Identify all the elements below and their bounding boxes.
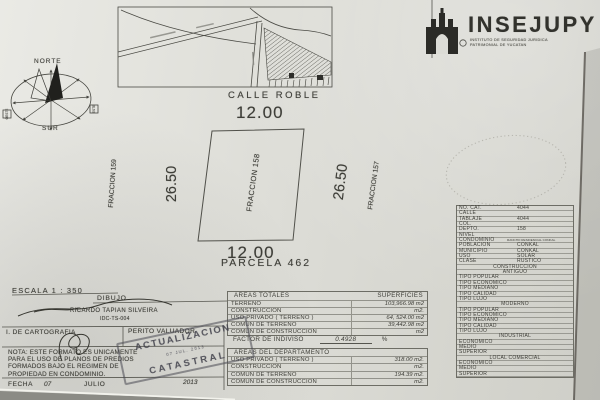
cadastral-row-label: INDUSTRIAL — [499, 333, 531, 339]
logo-wordmark: INSEJUPY — [468, 12, 597, 38]
compass-west-label: OESTE — [5, 104, 9, 124]
row-value: 64, 524.00 m2 — [351, 315, 427, 321]
cadastral-data-table: NO. CAT. 4044 CALLE TABLAJE 4044 COL. DE… — [456, 205, 574, 378]
parcel-label: PARCELA 462 — [221, 257, 311, 269]
row-value: m2. — [351, 379, 427, 385]
areas-totales-row: TERRENO 103,966.98 m2 — [228, 300, 427, 307]
areas-departamento-row: COMUN DE CONSTRUCCION m2. — [228, 378, 427, 385]
cadastral-row-label: LOCAL COMERCIAL — [489, 355, 540, 361]
insejupy-arch-logo-icon — [426, 8, 458, 54]
date-label: FECHA — [8, 381, 33, 388]
row-label: COMUN DE CONSTRUCCION — [228, 379, 351, 385]
areas-departamento-row: CONSTRUCCION m2. — [228, 363, 427, 370]
row-label: COMUN DE TERRENO — [228, 372, 351, 378]
areas-totales-table: AREAS TOTALES SUPERFICIES TERRENO 103,96… — [227, 291, 428, 336]
factor-unit: % — [382, 336, 388, 344]
factor-value: 0.4928 — [320, 336, 372, 344]
scanned-cadastral-sheet: INSEJUPY INSTITUTO DE SEGURIDAD JURIDICA… — [0, 0, 600, 400]
compass-east-label: ESTE — [92, 99, 96, 119]
factor-indiviso-row: FACTOR DE INDIVISO 0.4928 % — [233, 336, 388, 344]
cadastral-row: SUPERIOR — [457, 372, 573, 377]
street-label: CALLE ROBLE — [228, 90, 320, 101]
logo-subtext-line2: PATRIMONIAL DE YUCATAN — [470, 43, 527, 47]
row-value: m2 — [351, 329, 427, 335]
areas-totales-header: AREAS TOTALES SUPERFICIES — [228, 292, 427, 300]
note-line: PROPIEDAD EN CONDOMINIO. — [8, 371, 138, 378]
row-value: 194.39 m2. — [351, 372, 427, 378]
areas-departamento-header: AREAS DEL DEPARTAMENTO — [228, 349, 427, 356]
areas-totales-title: AREAS TOTALES — [228, 292, 289, 300]
areas-departamento-table: AREAS DEL DEPARTAMENTO USO PRIVADO ( TER… — [227, 348, 428, 386]
cadastral-row-label: ANTIGUO — [503, 269, 528, 275]
row-value: 318.00 m2. — [351, 357, 427, 363]
row-value: m2. — [351, 364, 427, 370]
row-value: m2. — [351, 308, 427, 314]
areas-departamento-row: USO PRIVADO ( TERRENO ) 318.00 m2. — [228, 356, 427, 363]
row-label: CONSTRUCCION — [228, 308, 351, 314]
compass-north-label: NORTE — [34, 58, 62, 65]
row-value: 103,966.98 m2 — [351, 301, 427, 307]
areas-totales-row: COMUN DE CONSTRUCCION m2 — [228, 328, 427, 335]
page-right-edge-shadow — [574, 48, 600, 400]
map-subdivision-hatch — [264, 28, 331, 80]
scale-label: ESCALA 1 : 350 — [12, 286, 83, 295]
dimension-left: 26.50 — [164, 155, 180, 213]
cadastral-row-label: MODERNO — [501, 301, 529, 307]
areas-totales-row: COMUN DE TERRENO 39,442.98 m2 — [228, 321, 427, 328]
date-day: 07 — [44, 381, 51, 388]
compass-needle — [45, 63, 63, 103]
areas-totales-row: USO PRIVADO ( TERRENO ) 64, 524.00 m2 — [228, 314, 427, 321]
compass-south-label: SUR — [42, 125, 59, 132]
areas-departamento-row: COMUN DE TERRENO 194.39 m2. — [228, 371, 427, 378]
compass-rose-icon — [3, 63, 98, 130]
draftsman-name: RICARDO TAPIAN SILVEIRA — [70, 308, 158, 314]
map-illegible-road-labels — [150, 23, 254, 65]
logo-sub-emblem-icon — [460, 40, 466, 46]
map-landmark-block — [289, 73, 294, 78]
draftsman-code: IDC-TS-004 — [100, 316, 130, 322]
map-landmark-block — [317, 75, 323, 80]
embossed-seal-impression — [442, 129, 569, 211]
logo-subtext-line1: INSTITUTO DE SEGURIDAD JURIDICA — [470, 38, 548, 42]
cartography-header: I. DE CARTOGRAFIA — [6, 329, 76, 336]
date-year: 2013 — [183, 379, 197, 386]
row-value: 39,442.98 m2 — [351, 322, 427, 328]
date-month: JULIO — [84, 381, 105, 388]
row-label: TERRENO — [228, 301, 351, 307]
dimension-top: 12.00 — [236, 103, 284, 123]
row-label: CONSTRUCCION — [228, 364, 351, 370]
drawing-header: DIBUJO — [97, 295, 127, 302]
superficies-column-header: SUPERFICIES — [377, 292, 427, 300]
cadastral-row-label: SUPERIOR — [459, 372, 487, 377]
areas-totales-row: CONSTRUCCION m2. — [228, 307, 427, 314]
note-line: FORMADOS BAJO EL REGIMEN DE — [8, 363, 138, 370]
